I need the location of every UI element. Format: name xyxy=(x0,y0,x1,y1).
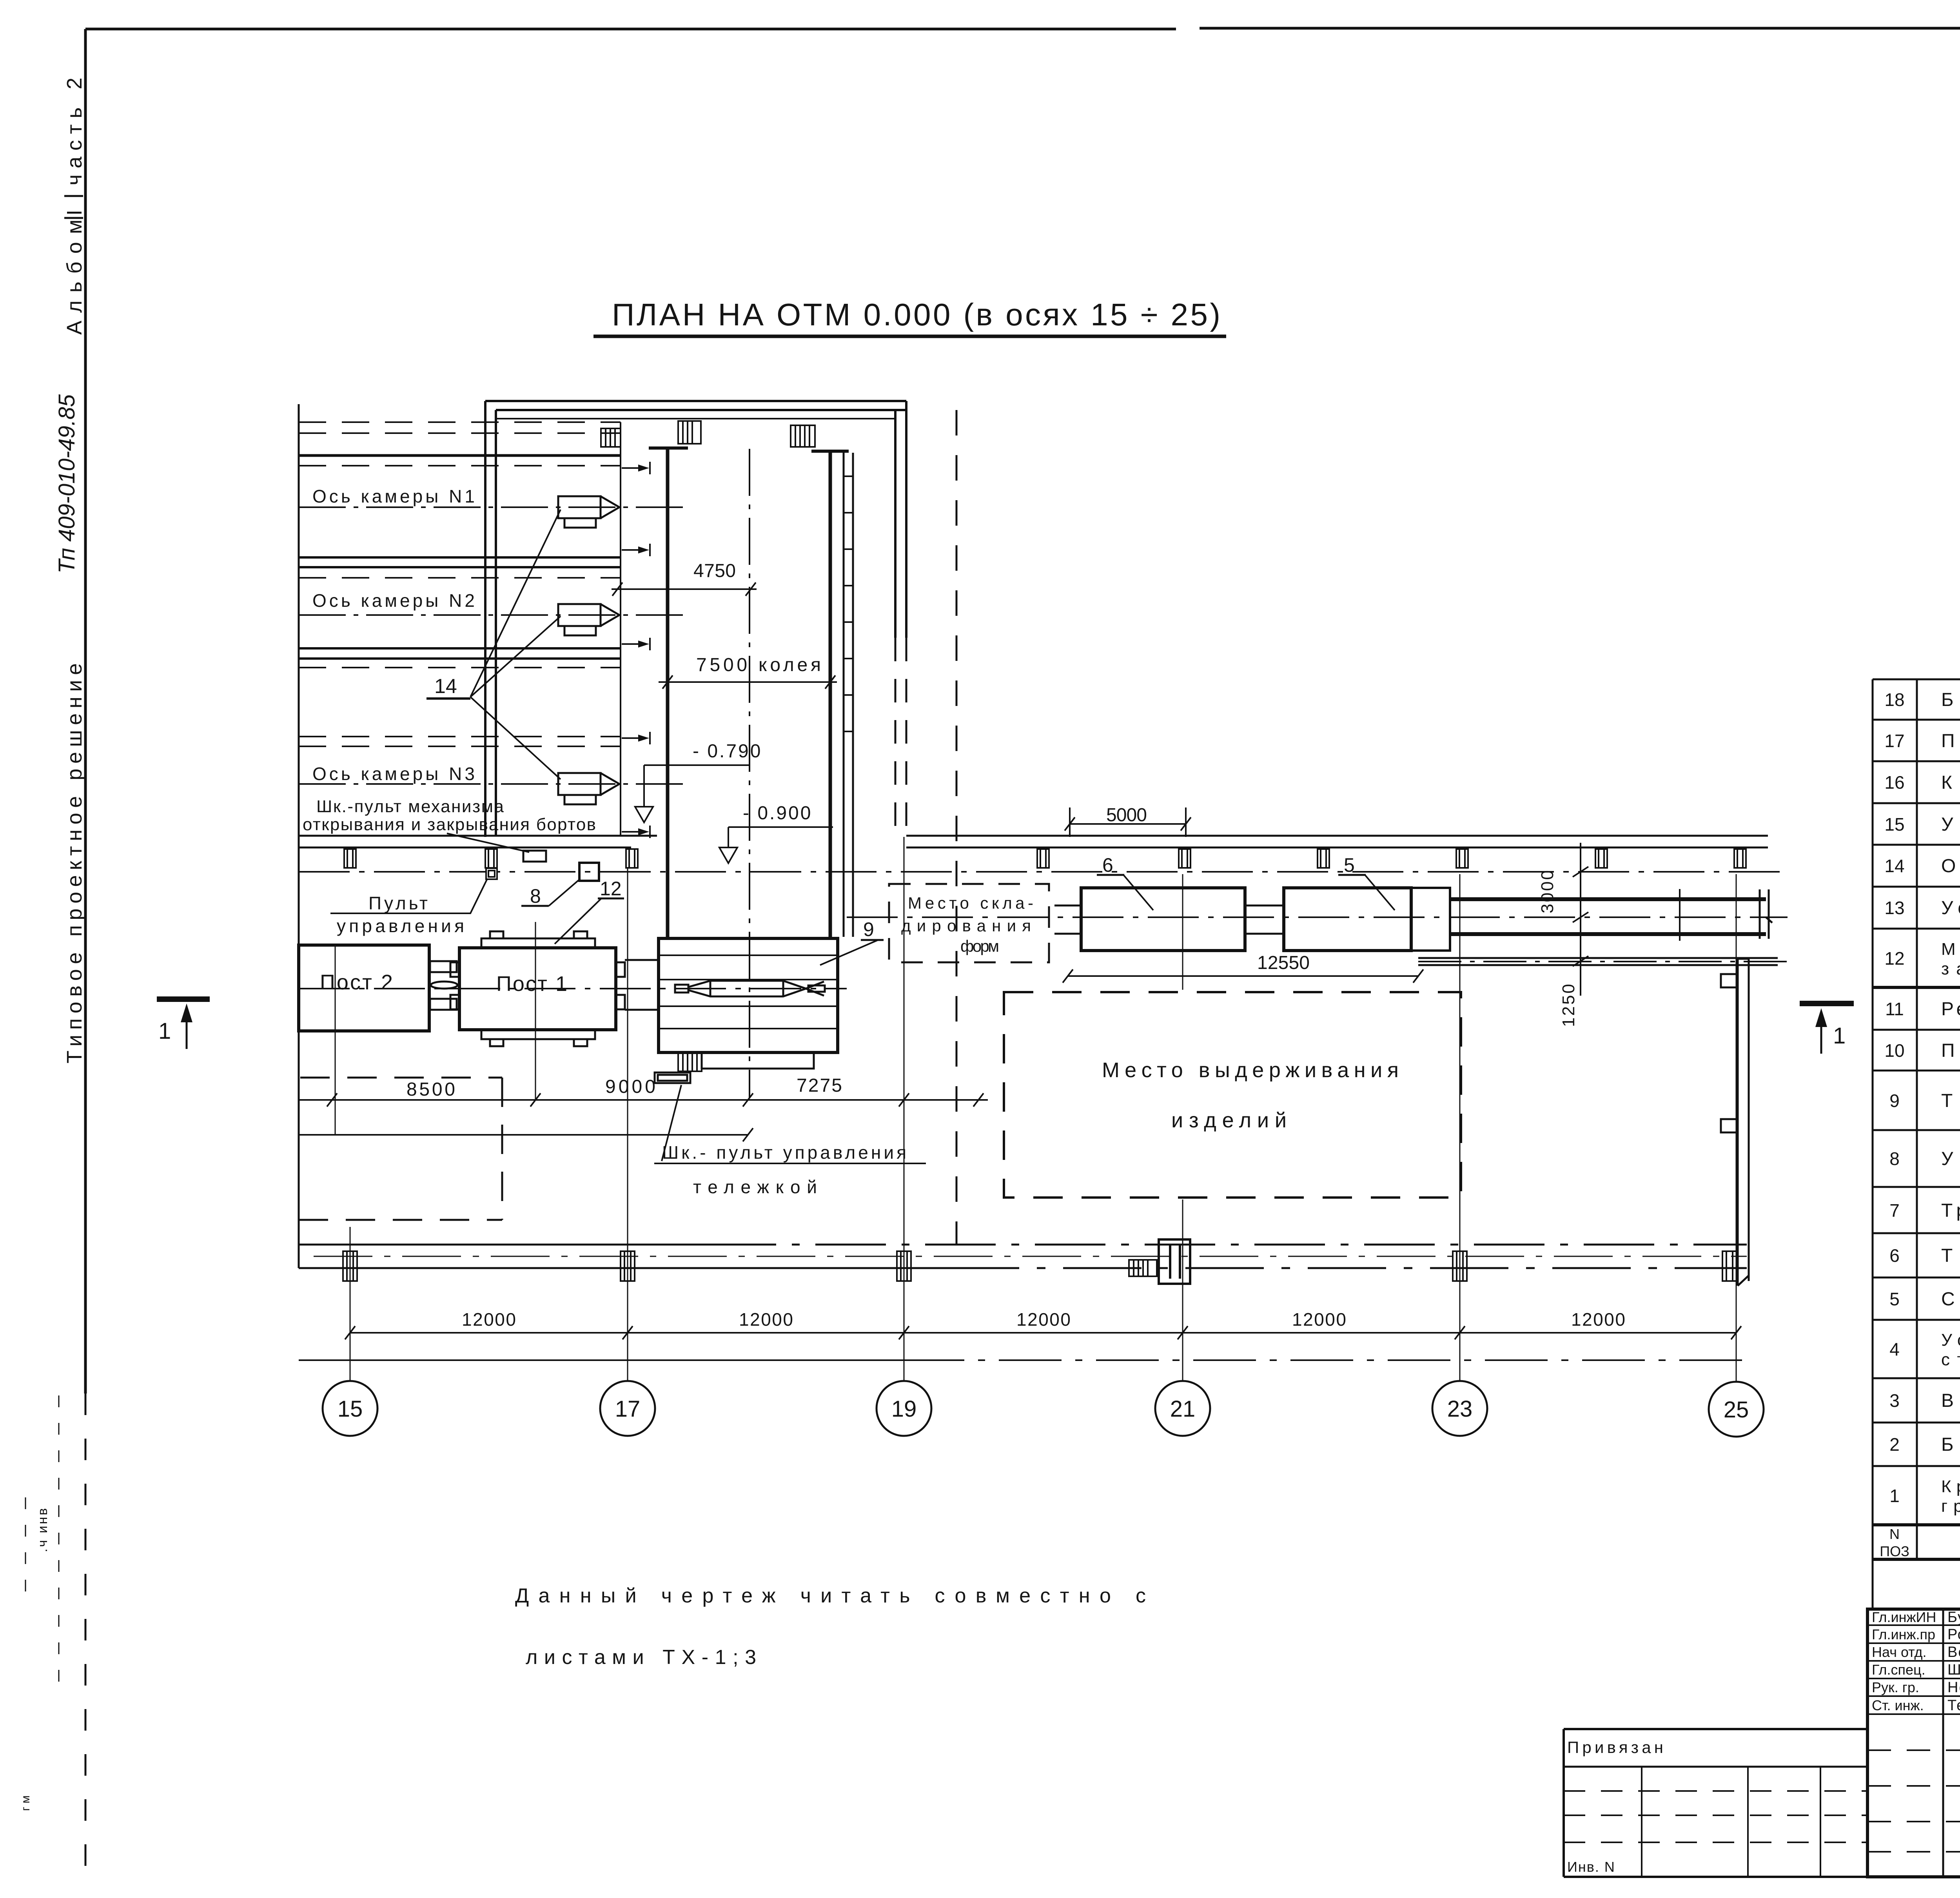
svg-text:12550: 12550 xyxy=(1257,953,1310,973)
svg-text:12000: 12000 xyxy=(462,1309,516,1330)
svg-text:Привод конвейера: Привод конвейера xyxy=(1941,1040,1960,1061)
svg-text:2: 2 xyxy=(1889,1434,1900,1455)
svg-text:листами ТХ-1;3: листами ТХ-1;3 xyxy=(526,1646,756,1669)
svg-text:12000: 12000 xyxy=(739,1309,793,1330)
svg-text:Нефедова: Нефедова xyxy=(1947,1679,1960,1696)
svg-text:Теплов: Теплов xyxy=(1947,1697,1960,1714)
svg-text:Пост 2: Пост 2 xyxy=(320,971,393,994)
svg-text:Ось камеры N3: Ось камеры N3 xyxy=(312,764,475,784)
svg-text:Типовое проектное решение: Типовое проектное решение xyxy=(63,663,86,1063)
svg-text:10: 10 xyxy=(1884,1040,1904,1061)
svg-text:Пост 1: Пост 1 xyxy=(496,972,567,996)
svg-text:Волконский: Волконский xyxy=(1947,1644,1960,1660)
svg-text:12: 12 xyxy=(600,878,622,900)
svg-text:Место скла-: Место скла- xyxy=(908,894,1033,912)
svg-text:Установка насосная: Установка насосная xyxy=(1941,814,1960,835)
svg-text:9000: 9000 xyxy=(605,1076,655,1097)
svg-text:17: 17 xyxy=(1884,731,1904,751)
svg-text:Ось камеры N1: Ось камеры N1 xyxy=(312,486,475,506)
svg-text:Портал самоходный: Портал самоходный xyxy=(1941,731,1960,751)
svg-text:Шк.- пульт управления: Шк.- пульт управления xyxy=(662,1142,906,1163)
svg-text:12000: 12000 xyxy=(1292,1309,1346,1330)
svg-text:Виброплощадка г/п 15 т: Виброплощадка г/п 15 т xyxy=(1941,1390,1960,1411)
svg-text:Гл.инж.пр: Гл.инж.пр xyxy=(1872,1626,1935,1642)
svg-text:Установка для смазки: Установка для смазки xyxy=(1941,898,1960,918)
svg-text:грузоподъемность 10 т: грузоподъемность 10 т xyxy=(1941,1497,1960,1516)
svg-text:16: 16 xyxy=(1884,772,1904,793)
svg-text:дирования: дирования xyxy=(901,916,1031,935)
svg-text:4750: 4750 xyxy=(693,561,736,581)
svg-text:часть 2: часть 2 xyxy=(63,78,86,185)
svg-text:7275: 7275 xyxy=(797,1075,842,1096)
svg-text:Ось камеры N2: Ось камеры N2 xyxy=(312,590,475,611)
svg-text:7: 7 xyxy=(1889,1200,1900,1221)
svg-text:управления: управления xyxy=(337,916,464,936)
svg-text:9: 9 xyxy=(863,918,874,940)
svg-text:11: 11 xyxy=(1885,999,1904,1019)
svg-text:закрывания бортов: закрывания бортов xyxy=(1941,959,1960,978)
svg-text:Трансформатор сварочный: Трансформатор сварочный xyxy=(1941,1200,1960,1221)
svg-text:Тп 409-010-49.85: Тп 409-010-49.85 xyxy=(54,394,80,573)
svg-text:23: 23 xyxy=(1447,1396,1473,1422)
svg-text:тележкой: тележкой xyxy=(693,1177,817,1197)
svg-text:8: 8 xyxy=(530,885,541,907)
svg-text:5000: 5000 xyxy=(1106,805,1147,826)
svg-text:- 0.900: - 0.900 xyxy=(743,803,812,824)
svg-text:г м: г м xyxy=(19,1795,32,1811)
svg-text:стержней: стержней xyxy=(1941,1350,1960,1369)
svg-text:Шашин: Шашин xyxy=(1947,1662,1960,1678)
svg-text:1: 1 xyxy=(1833,1023,1846,1049)
svg-text:14: 14 xyxy=(1884,856,1904,876)
svg-text:13: 13 xyxy=(1884,898,1904,918)
svg-text:Бузинов: Бузинов xyxy=(1947,1609,1960,1626)
svg-text:Привязан: Привязан xyxy=(1567,1738,1663,1756)
svg-text:17: 17 xyxy=(615,1396,641,1422)
svg-text:15: 15 xyxy=(338,1396,363,1422)
svg-text:6: 6 xyxy=(1889,1245,1900,1266)
svg-text:1: 1 xyxy=(1889,1486,1900,1506)
svg-text:Шк.-пульт механизма: Шк.-пульт механизма xyxy=(316,797,504,816)
svg-text:Кран мостовой электрический: Кран мостовой электрический xyxy=(1941,1477,1960,1496)
svg-text:I: I xyxy=(63,210,86,216)
svg-text:Установка насосная: Установка насосная xyxy=(1941,1149,1960,1169)
svg-text:Установка для электронагре: Установка для электронагрева xyxy=(1941,1330,1960,1350)
svg-text:19: 19 xyxy=(891,1396,917,1422)
svg-text:4: 4 xyxy=(1889,1339,1900,1359)
svg-text:ПЛАН НА ОТМ 0.000 (в осях 1: ПЛАН НА ОТМ 0.000 (в осях 15 ÷ 25) xyxy=(612,297,1220,332)
svg-text:Рук. гр.: Рук. гр. xyxy=(1872,1679,1919,1695)
svg-text:12: 12 xyxy=(1884,948,1904,969)
svg-text:Гл.инжИН: Гл.инжИН xyxy=(1872,1609,1936,1625)
svg-text:Ст. инж.: Ст. инж. xyxy=(1872,1697,1924,1713)
svg-text:.ч инв: .ч инв xyxy=(35,1507,50,1552)
svg-text:открывания и закрывания бортов: открывания и закрывания бортов xyxy=(303,815,596,834)
svg-text:Машина для открывания и: Машина для открывания и xyxy=(1941,940,1960,959)
svg-text:Данный чертеж читать совмес: Данный чертеж читать совместно с xyxy=(515,1584,1146,1607)
svg-text:Инв. N: Инв. N xyxy=(1567,1859,1615,1875)
svg-text:3000: 3000 xyxy=(1538,869,1557,913)
svg-text:8500: 8500 xyxy=(407,1079,455,1100)
svg-text:6: 6 xyxy=(1102,854,1113,876)
svg-text:Нач отд.: Нач отд. xyxy=(1872,1644,1927,1660)
svg-text:Бункер раздаточный: Бункер раздаточный xyxy=(1941,690,1960,710)
svg-text:3: 3 xyxy=(1889,1390,1900,1411)
svg-text:1250: 1250 xyxy=(1559,982,1578,1027)
svg-text:Кожух: Кожух xyxy=(1941,772,1960,793)
svg-text:12000: 12000 xyxy=(1571,1309,1625,1330)
svg-text:Тележка - прицеп: Тележка - прицеп xyxy=(1941,1245,1960,1266)
svg-text:12000: 12000 xyxy=(1016,1309,1071,1330)
svg-text:Самоходная тележка г/п. 20т: Самоходная тележка г/п. 20т xyxy=(1941,1289,1960,1310)
svg-text:Оборудование щелевых камер: Оборудование щелевых камер xyxy=(1941,856,1960,876)
svg-text:9: 9 xyxy=(1889,1091,1900,1111)
svg-text:25: 25 xyxy=(1724,1397,1749,1423)
svg-text:21: 21 xyxy=(1170,1396,1196,1422)
svg-text:18: 18 xyxy=(1884,690,1904,710)
svg-text:форм: форм xyxy=(960,937,999,955)
svg-text:Рельсы подъемные г/п 24т.: Рельсы подъемные г/п 24т. xyxy=(1941,999,1960,1020)
svg-text:изделий: изделий xyxy=(1171,1109,1287,1132)
svg-text:N: N xyxy=(1889,1526,1900,1542)
svg-text:Место выдерживания: Место выдерживания xyxy=(1102,1058,1399,1082)
svg-text:- 0.790: - 0.790 xyxy=(693,741,762,762)
svg-text:7500 колея: 7500 колея xyxy=(696,655,821,675)
svg-text:15: 15 xyxy=(1884,814,1904,835)
svg-text:Гл.спец.: Гл.спец. xyxy=(1872,1662,1926,1678)
svg-text:8: 8 xyxy=(1889,1149,1900,1169)
svg-text:Тележка передаточная: Тележка передаточная xyxy=(1941,1091,1960,1111)
svg-text:14: 14 xyxy=(434,675,457,698)
svg-text:5: 5 xyxy=(1889,1289,1900,1309)
svg-text:Бетоноукладчик: Бетоноукладчик xyxy=(1941,1434,1960,1455)
svg-text:ПОЗ: ПОЗ xyxy=(1880,1543,1909,1559)
svg-text:Альбом: Альбом xyxy=(63,220,86,335)
svg-text:5: 5 xyxy=(1344,854,1355,876)
svg-text:1: 1 xyxy=(158,1018,171,1044)
svg-text:Ротлиб: Ротлиб xyxy=(1947,1626,1960,1643)
svg-text:Пульт: Пульт xyxy=(368,893,428,913)
